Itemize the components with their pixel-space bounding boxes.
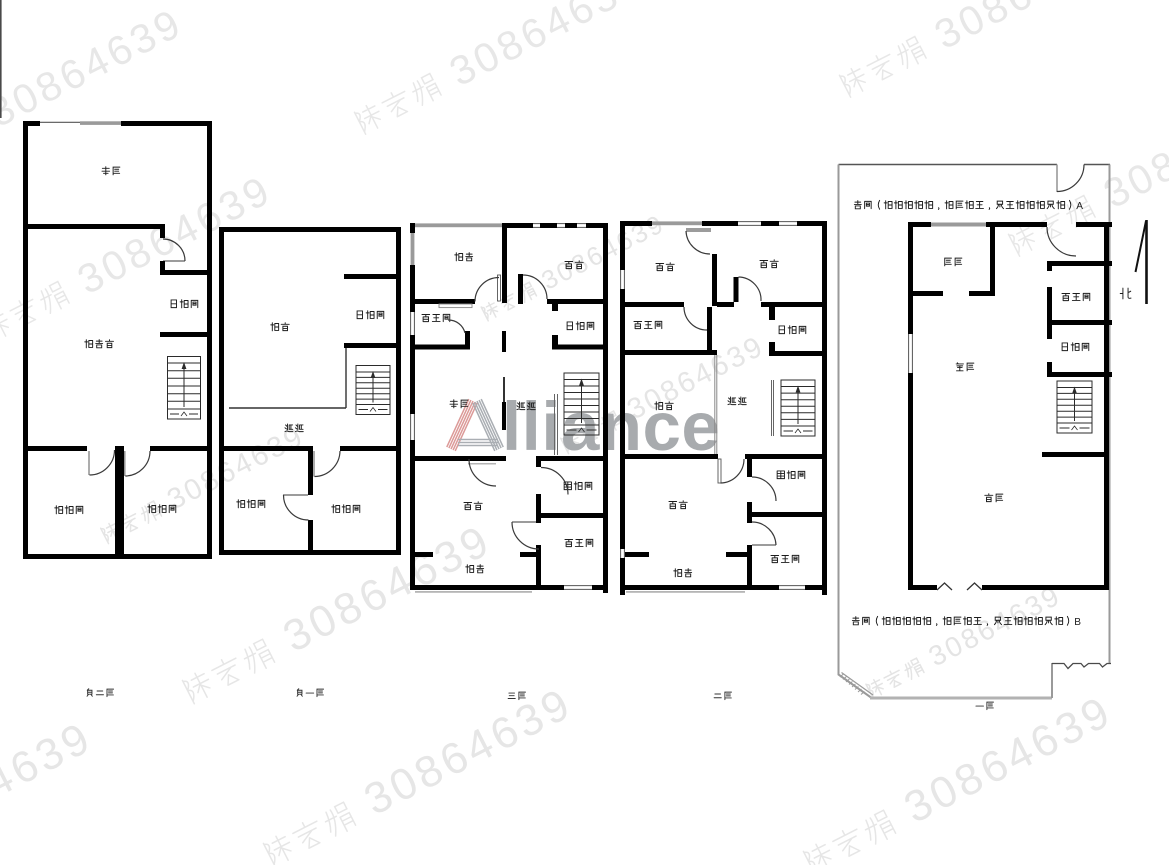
svg-text:B: B bbox=[1074, 617, 1081, 628]
svg-text:lliance: lliance bbox=[502, 388, 720, 465]
svg-text:A: A bbox=[1076, 201, 1083, 212]
